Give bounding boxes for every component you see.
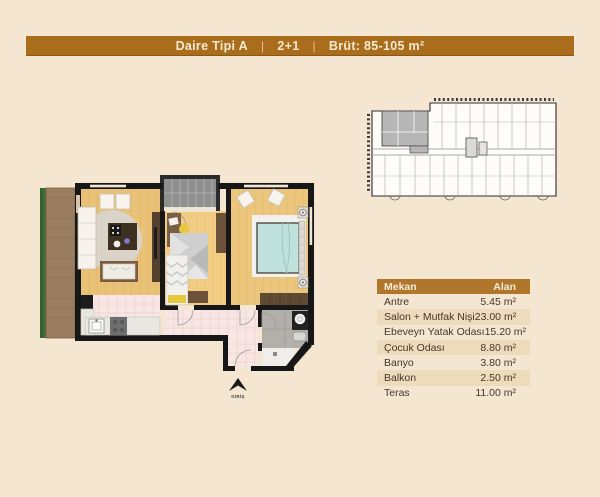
hall-floor <box>165 310 258 335</box>
table-row: Çocuk Odası 8.80 m² <box>377 340 530 355</box>
column-room: Mekan <box>377 281 464 293</box>
room-name: Teras <box>377 387 464 399</box>
table-row: Ebeveyn Yatak Odası 15.20 m² <box>377 325 530 340</box>
room-name: Antre <box>377 296 464 308</box>
entry-arcs <box>390 196 548 200</box>
master-bed <box>257 223 299 273</box>
area-table-header: Mekan Alan <box>377 279 530 294</box>
table-row: Teras 11.00 m² <box>377 386 530 401</box>
table-row: Salon + Mutfak Nişi 23.00 m² <box>377 309 530 324</box>
armchair <box>100 194 114 209</box>
table-row: Antre 5.45 m² <box>377 294 530 309</box>
desk-chair <box>179 224 189 234</box>
pillow <box>168 295 186 303</box>
room-area: 8.80 m² <box>464 342 530 354</box>
room-area: 3.80 m² <box>464 357 530 369</box>
room-name: Banyo <box>377 357 464 369</box>
armchair <box>116 194 130 209</box>
apartment-floor-plan: GİRİŞ <box>30 155 320 405</box>
entrance-label: GİRİŞ <box>231 394 244 399</box>
entrance-marker: GİRİŞ <box>229 378 247 399</box>
bathroom-fixtures <box>292 311 308 341</box>
stove <box>110 317 127 335</box>
dresser <box>188 291 208 303</box>
room-area: 5.45 m² <box>464 296 530 308</box>
entrance-arrow-icon <box>229 378 247 391</box>
wardrobe <box>216 213 226 253</box>
fridge <box>81 295 93 309</box>
unit-header-banner: Daire Tipi A | 2+1 | Brüt: 85-105 m² <box>26 36 574 56</box>
wash-basin <box>295 314 306 325</box>
building-key-plan <box>360 92 562 206</box>
room-name: Ebeveyn Yatak Odası <box>377 326 485 338</box>
unit-room-count: 2+1 <box>277 39 299 53</box>
room-area: 11.00 m² <box>464 387 530 399</box>
wardrobe <box>260 293 308 305</box>
separator: | <box>312 39 315 53</box>
room-name: Salon + Mutfak Nişi <box>377 311 475 323</box>
toilet <box>293 332 306 341</box>
room-name: Balkon <box>377 372 464 384</box>
balcony <box>160 175 220 212</box>
area-table: Mekan Alan Antre 5.45 m² Salon + Mutfak … <box>377 279 530 401</box>
room-name: Çocuk Odası <box>377 342 464 354</box>
tv <box>154 227 157 259</box>
brochure-page: { "header": { "title": "Daire Tipi A", "… <box>0 0 600 497</box>
room-area: 23.00 m² <box>475 311 530 323</box>
table-row: Balkon 2.50 m² <box>377 370 530 385</box>
column-area: Alan <box>464 281 530 293</box>
cooktop <box>110 225 121 236</box>
separator: | <box>261 39 264 53</box>
room-area: 15.20 m² <box>485 326 540 338</box>
sofa <box>78 207 96 269</box>
terrace <box>40 188 75 338</box>
table-row: Banyo 3.80 m² <box>377 355 530 370</box>
room-area: 2.50 m² <box>464 372 530 384</box>
unit-type-title: Daire Tipi A <box>176 39 248 53</box>
unit-gross-area: Brüt: 85-105 m² <box>329 39 425 53</box>
